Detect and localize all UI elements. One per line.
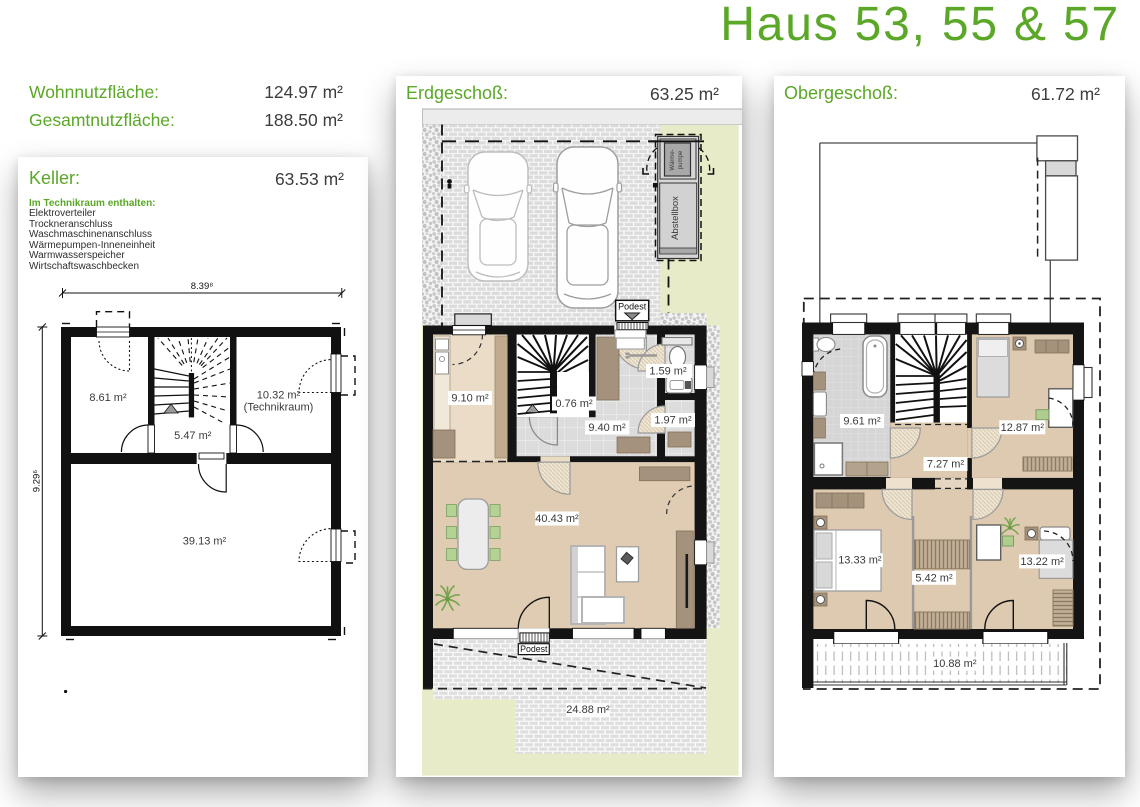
svg-text:5.42 m²: 5.42 m²: [915, 572, 953, 584]
svg-text:9.10 m²: 9.10 m²: [451, 393, 489, 405]
svg-text:5.47 m²: 5.47 m²: [174, 430, 212, 442]
svg-text:12.87 m²: 12.87 m²: [1001, 422, 1045, 434]
svg-text:8.39⁸: 8.39⁸: [191, 281, 214, 292]
svg-text:7.27 m²: 7.27 m²: [927, 459, 965, 471]
svg-text:8.61 m²: 8.61 m²: [89, 392, 127, 404]
svg-text:1.59 m²: 1.59 m²: [649, 366, 687, 378]
svg-text:Podest: Podest: [520, 644, 548, 654]
svg-text:1.97 m²: 1.97 m²: [654, 415, 692, 427]
svg-text:Wärme-: Wärme-: [670, 149, 676, 170]
svg-text:13.22 m²: 13.22 m²: [1020, 556, 1064, 568]
svg-text:(Technikraum): (Technikraum): [244, 402, 314, 414]
svg-text:39.13 m²: 39.13 m²: [183, 536, 227, 548]
svg-text:13.33 m²: 13.33 m²: [838, 555, 882, 567]
svg-text:Podest: Podest: [618, 301, 647, 311]
svg-text:0.76 m²: 0.76 m²: [555, 398, 593, 410]
svg-text:10.88 m²: 10.88 m²: [933, 658, 977, 670]
svg-text:Abstellbox: Abstellbox: [670, 196, 681, 240]
svg-text:40.43 m²: 40.43 m²: [535, 513, 579, 525]
svg-text:24.88 m²: 24.88 m²: [566, 704, 610, 716]
svg-text:9.40 m²: 9.40 m²: [588, 422, 626, 434]
svg-text:9.29⁶: 9.29⁶: [32, 470, 43, 492]
svg-text:9.61 m²: 9.61 m²: [843, 416, 881, 428]
svg-text:pumpe: pumpe: [678, 150, 684, 169]
svg-text:10.32 m²: 10.32 m²: [257, 390, 301, 402]
